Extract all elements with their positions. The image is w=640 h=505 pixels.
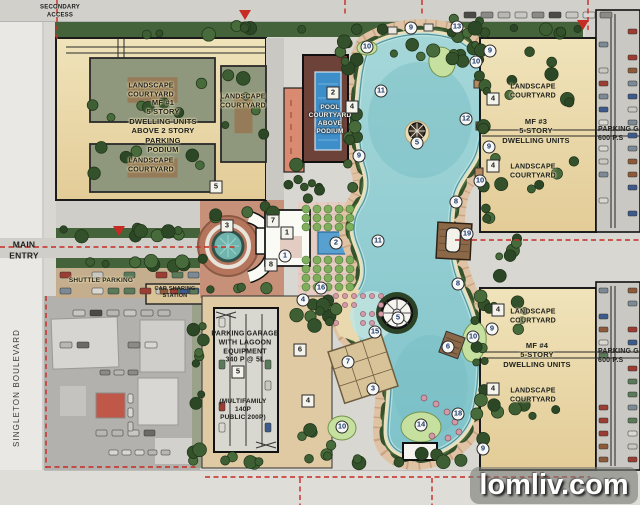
aerial-photo-existing-lot	[44, 296, 206, 470]
watermark: lomliv.com	[470, 467, 638, 504]
boat-dock	[436, 222, 472, 260]
site-plan-canvas	[0, 0, 640, 505]
lawn-mound	[357, 41, 377, 55]
north-road	[0, 0, 640, 22]
east-parking-garage-south	[596, 282, 640, 470]
singleton-sidewalk	[0, 22, 44, 505]
cabana	[475, 168, 483, 176]
kiosk	[424, 24, 433, 31]
building-mf3	[480, 38, 596, 232]
site-plan-page: { "title": "Lagoon community master site…	[0, 0, 640, 505]
lawn-mound	[328, 416, 356, 440]
north-median	[55, 22, 583, 37]
lawn-mound	[401, 412, 441, 442]
kiosk	[388, 27, 397, 34]
roundabout	[198, 216, 258, 276]
building-pool-courtyard	[303, 55, 348, 162]
building-mf4	[480, 288, 596, 470]
